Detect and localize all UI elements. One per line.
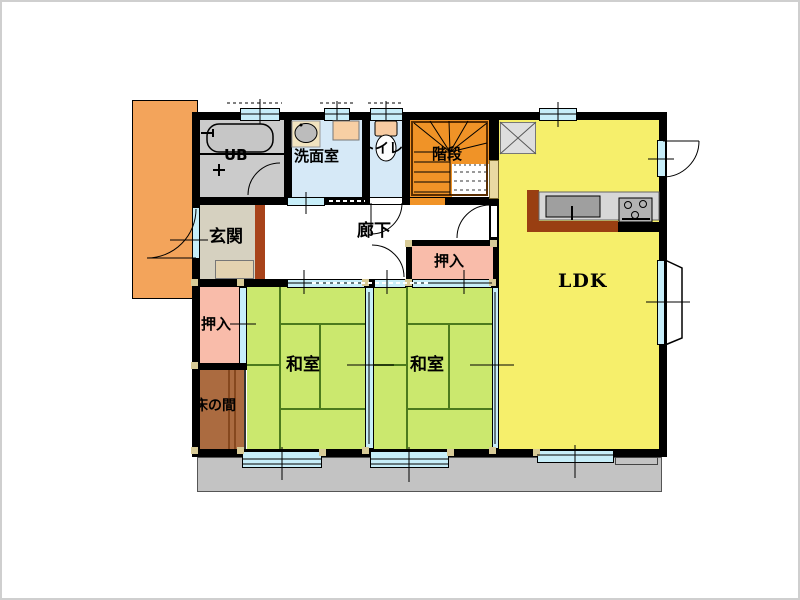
room-label-closet-west: 押入 <box>201 317 231 332</box>
gas-stove <box>619 198 652 222</box>
linework-overlay <box>2 2 800 600</box>
room-label-ldk: LDK <box>558 272 607 291</box>
track-dashes <box>312 201 428 283</box>
refrigerator-x <box>500 122 536 154</box>
room-label-genkan: 玄関 <box>209 229 243 246</box>
ub-door-arc <box>248 163 280 195</box>
opening-ticks <box>170 99 690 482</box>
entrance-door-arc <box>147 209 196 258</box>
kitchen-counter <box>527 190 659 232</box>
wash-basin <box>292 121 320 147</box>
room-label-washroom: 洗面室 <box>294 149 339 164</box>
hallway-door-arc <box>372 245 404 277</box>
room-label-toilet: トイレ <box>361 142 403 156</box>
room-label-closet-hall: 押入 <box>434 254 464 269</box>
room-label-washitsu-west: 和室 <box>286 357 320 374</box>
room-label-ub: UB <box>224 148 248 163</box>
ldk-door-arc <box>457 205 490 238</box>
room-label-stairs: 階段 <box>432 147 462 162</box>
room-label-tokonoma: 床の間 <box>194 399 236 413</box>
washing-machine-pan <box>333 121 359 140</box>
floor-plan: UB 洗面室 トイレ 階段 玄関 廊下 押入 押入 和室 和室 床の間 LDK <box>0 0 800 600</box>
under-stair-shelf-lines <box>454 172 487 190</box>
room-label-hallway: 廊下 <box>357 223 391 240</box>
room-label-washitsu-east: 和室 <box>410 357 444 374</box>
